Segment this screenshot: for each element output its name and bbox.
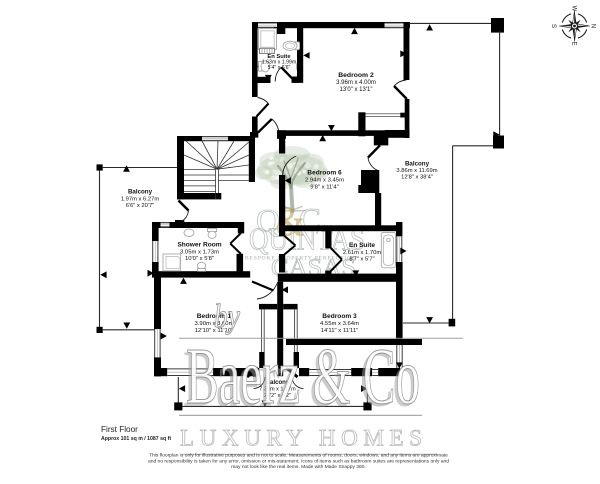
svg-text:by: by — [214, 299, 241, 336]
svg-text:2.61m x 1.70m: 2.61m x 1.70m — [343, 250, 382, 256]
svg-text:Shower Room: Shower Room — [177, 242, 221, 249]
svg-text:2.94m x 3.45m: 2.94m x 3.45m — [305, 178, 344, 184]
svg-text:W: W — [570, 6, 576, 12]
svg-text:This floorplan is only for ill: This floorplan is only for illustrative … — [149, 453, 448, 459]
svg-text:First Floor: First Floor — [101, 425, 138, 434]
svg-text:3.96m x 4.00m: 3.96m x 4.00m — [336, 80, 376, 86]
svg-text:may not look like the real ite: may not look like the real items. Made w… — [231, 464, 366, 470]
svg-text:8'7" x 5'7": 8'7" x 5'7" — [349, 257, 374, 263]
svg-text:12'8" x 38'4": 12'8" x 38'4" — [401, 174, 433, 180]
svg-text:9'8" x 11'4": 9'8" x 11'4" — [310, 185, 339, 191]
svg-text:3.05m x 1.73m: 3.05m x 1.73m — [180, 249, 219, 255]
svg-text:Bedroom 6: Bedroom 6 — [307, 170, 342, 177]
svg-text:Balcony: Balcony — [128, 189, 153, 196]
svg-text:Balcony: Balcony — [405, 161, 430, 168]
svg-text:Bedroom 2: Bedroom 2 — [338, 72, 374, 79]
svg-text:10'0" x 5'8": 10'0" x 5'8" — [185, 256, 214, 262]
svg-text:En Suite: En Suite — [349, 242, 375, 249]
svg-text:3.86m x 11.69m: 3.86m x 11.69m — [396, 168, 437, 174]
svg-text:and no responsibility is taken: and no responsibility is taken for any e… — [148, 458, 449, 464]
svg-text:5'4" x 6'6": 5'4" x 6'6" — [268, 65, 291, 71]
svg-text:4.55m x 3.64m: 4.55m x 3.64m — [320, 321, 359, 327]
svg-text:1.97m x 6.27m: 1.97m x 6.27m — [121, 196, 160, 202]
svg-text:Bedroom 3: Bedroom 3 — [322, 313, 357, 320]
svg-text:6'6" x 20'7": 6'6" x 20'7" — [126, 203, 155, 209]
svg-text:13'0" x 13'1": 13'0" x 13'1" — [340, 87, 373, 93]
svg-text:E: E — [570, 41, 576, 45]
svg-text:N: N — [590, 24, 596, 28]
svg-text:Approx 101 sq m / 1087 sq ft: Approx 101 sq m / 1087 sq ft — [101, 436, 171, 442]
svg-text:Baerz & Co: Baerz & Co — [186, 331, 420, 421]
svg-text:S: S — [550, 24, 556, 28]
